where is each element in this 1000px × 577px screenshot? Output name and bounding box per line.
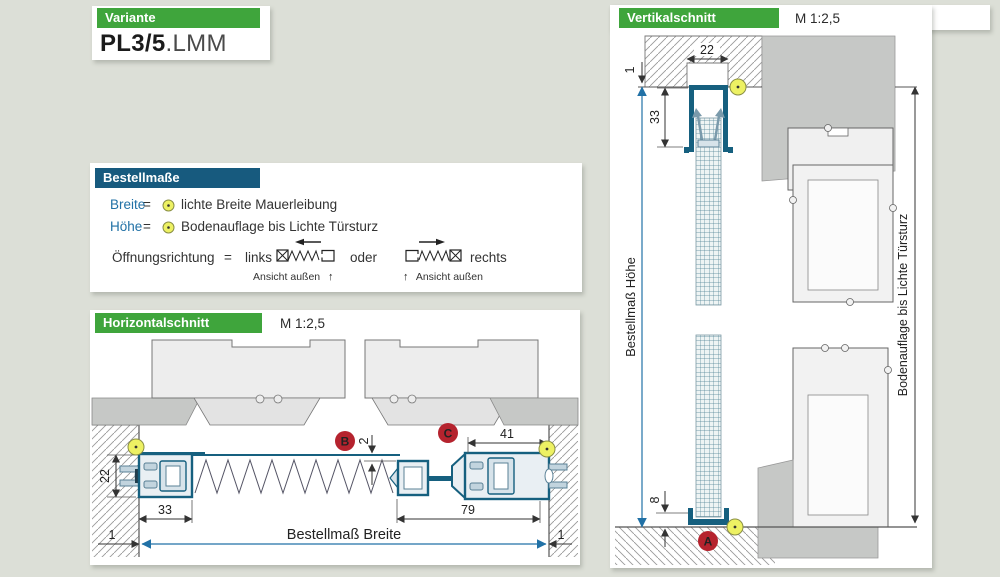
dim-41-label: 41 — [500, 427, 514, 441]
marker-b-label: B — [341, 435, 350, 449]
marker-badge-c: C — [438, 423, 458, 443]
mesh-screen — [696, 118, 721, 517]
pleated-door-schematic-right — [406, 250, 461, 261]
view-caption-left: Ansicht außen ↑ — [253, 271, 334, 283]
variante-header-label: Variante — [105, 10, 156, 25]
arrow-left-icon — [295, 239, 321, 245]
dim-bodenauflage-tuersturz: Bodenauflage bis Lichte Türsturz — [896, 87, 915, 523]
vertical-section-drawing: 22 1 33 8 Bestellmaß Höhe Bodenauflage b… — [610, 30, 932, 568]
opening-direction-label: Öffnungsrichtung — [112, 250, 215, 265]
hoehe-desc: Bodenauflage bis Lichte Türsturz — [181, 219, 378, 234]
dim-bestellmass-hoehe: Bestellmaß Höhe — [623, 87, 642, 527]
breite-desc: lichte Breite Mauerleibung — [181, 197, 337, 212]
breite-term: Breite — [110, 197, 145, 212]
dim-top-gap-1: 1 — [623, 62, 642, 83]
view-caption-right-text: Ansicht außen — [416, 271, 483, 283]
variant-code: PL3/5.LMM — [100, 30, 227, 58]
yellow-dot-icon — [162, 221, 175, 234]
dim-22-label: 22 — [98, 469, 112, 483]
bestellmass-hoehe-label: Bestellmaß Höhe — [623, 257, 638, 357]
catalog-page: Variante PL3/5.LMM Bestellmaße Breite = … — [0, 0, 1000, 577]
floor-hatch — [615, 527, 775, 565]
arrow-right-icon — [419, 239, 445, 245]
frame-profile-top-right — [365, 340, 578, 425]
up-arrow-icon: ↑ — [328, 271, 334, 283]
dim-bestellmass-breite: Bestellmaß Breite — [142, 527, 546, 544]
dim-1v-label: 1 — [623, 66, 637, 73]
marker-c-label: C — [444, 427, 453, 441]
vertikalschnitt-scale-label: M 1:2,5 — [795, 11, 840, 26]
hoehe-equals: = — [143, 219, 151, 234]
variant-code-suffix: .LMM — [166, 30, 227, 57]
hoehe-term: Höhe — [110, 219, 142, 234]
marker-badge-a: A — [698, 531, 718, 551]
vertikalschnitt-header-bar: Vertikalschnitt — [619, 8, 779, 28]
dim-33v-label: 33 — [648, 110, 662, 124]
yellow-dot-icon — [162, 199, 175, 212]
mesh-cassette-profile — [139, 452, 205, 497]
bestellmasse-header-bar: Bestellmaße — [95, 168, 260, 188]
horizontalschnitt-scale-label: M 1:2,5 — [280, 316, 325, 331]
marker-a-label: A — [704, 535, 713, 549]
up-arrow-icon: ↑ — [403, 271, 409, 283]
dim-1-left-label: 1 — [109, 528, 116, 542]
opening-oder-label: oder — [350, 250, 377, 265]
dim-2-label: 2 — [357, 437, 371, 444]
breite-equals: = — [143, 197, 151, 212]
dim-8v-label: 8 — [648, 496, 662, 503]
dim-frame-width-33: 33 — [139, 500, 192, 523]
horizontal-section-drawing: 22 33 79 41 2 Bestellmaß Breite — [90, 337, 580, 565]
leaf-profile-middle — [790, 165, 897, 306]
opening-equals: = — [224, 250, 232, 265]
dim-22v-label: 22 — [700, 43, 714, 57]
vertikalschnitt-header-label: Vertikalschnitt — [627, 10, 716, 25]
dim-handle-41: 41 — [468, 427, 547, 453]
opening-direction-symbol-left — [276, 237, 338, 263]
yellow-marker-bottom — [727, 519, 743, 535]
dim-33-label: 33 — [158, 503, 172, 517]
leaf-profile-lower — [793, 345, 892, 528]
bestellmasse-header-label: Bestellmaße — [103, 170, 180, 185]
slider-profile — [390, 461, 460, 495]
yellow-marker-left — [128, 439, 144, 455]
dim-track-height-33: 33 — [648, 88, 688, 147]
opening-rechts-label: rechts — [470, 250, 507, 265]
dim-79-label: 79 — [461, 503, 475, 517]
view-caption-right: ↑ Ansicht außen — [403, 271, 483, 283]
variant-code-bold: PL3/5 — [100, 30, 166, 57]
frame-profile-top-left — [92, 340, 345, 425]
marker-badge-b: B — [335, 431, 355, 451]
bodenauflage-label: Bodenauflage bis Lichte Türsturz — [896, 214, 910, 397]
pleated-door-schematic-left — [277, 250, 334, 261]
bestellmass-breite-label: Bestellmaß Breite — [287, 527, 401, 543]
yellow-marker-top — [730, 79, 746, 95]
opening-links-label: links — [245, 250, 272, 265]
variante-header-bar: Variante — [97, 8, 260, 28]
yellow-marker-right — [539, 441, 555, 457]
dim-slider-79: 79 — [397, 499, 540, 523]
dim-1-right-label: 1 — [558, 528, 565, 542]
horizontalschnitt-header-label: Horizontalschnitt — [103, 315, 209, 330]
view-caption-left-text: Ansicht außen — [253, 271, 320, 283]
opening-direction-symbol-right — [402, 237, 464, 263]
handle-profile — [452, 453, 549, 499]
horizontalschnitt-header-bar: Horizontalschnitt — [95, 313, 262, 333]
